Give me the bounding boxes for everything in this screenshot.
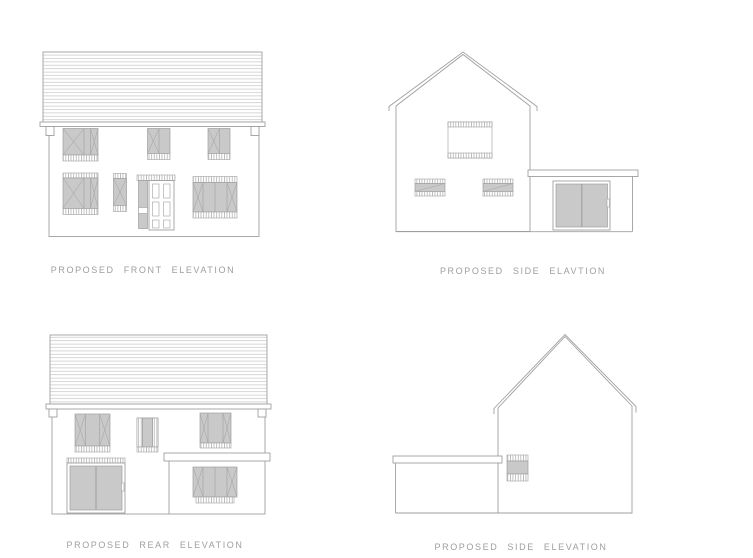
- front-door-sidelight: [139, 181, 148, 229]
- front-window-lower-left: [63, 173, 98, 215]
- rear-extension-roof: [164, 453, 270, 461]
- front-roof: [43, 52, 262, 122]
- side-top-gable-vent: [448, 122, 492, 158]
- front-window-lower-right: [193, 177, 237, 219]
- front-corbel-left: [46, 127, 54, 136]
- front-elevation: PROPOSED FRONT ELEVATION: [40, 52, 265, 275]
- side-bottom-gable-wall: [498, 337, 632, 514]
- rear-window-upper-right: [200, 413, 231, 448]
- side-bottom-window: [507, 455, 528, 481]
- rear-window-upper-middle: [137, 418, 158, 452]
- rear-roof: [50, 335, 267, 404]
- rear-corbel-left: [49, 409, 57, 417]
- rear-extension-window: [193, 467, 237, 503]
- drawing-sheet: PROPOSED FRONT ELEVATION: [0, 0, 753, 558]
- rear-fascia: [46, 404, 271, 409]
- side-top-elevation-caption: PROPOSED SIDE ELAVTION: [440, 266, 606, 276]
- rear-elevation: PROPOSED REAR ELEVATION: [46, 335, 271, 550]
- rear-patio-door: [67, 458, 125, 513]
- side-elevation-bottom: PROPOSED SIDE ELEVATION: [393, 335, 636, 553]
- front-window-small: [114, 174, 127, 212]
- side-bottom-extension-roof: [393, 456, 502, 463]
- side-top-window-left: [415, 179, 445, 196]
- rear-elevation-caption: PROPOSED REAR ELEVATION: [67, 540, 244, 550]
- side-elevation-top: PROPOSED SIDE ELAVTION: [389, 52, 638, 276]
- front-fascia: [40, 122, 265, 127]
- front-corbel-right: [251, 127, 259, 136]
- rear-window-upper-left: [75, 414, 110, 452]
- side-bottom-elevation-caption: PROPOSED SIDE ELEVATION: [435, 542, 608, 552]
- side-top-extension-roof: [528, 170, 638, 177]
- front-door: [137, 175, 175, 230]
- side-top-sliding-door: [553, 181, 610, 230]
- front-window-upper-right: [208, 129, 230, 160]
- side-top-window-right: [483, 179, 513, 196]
- front-elevation-caption: PROPOSED FRONT ELEVATION: [51, 265, 235, 275]
- rear-corbel-right: [258, 409, 266, 417]
- front-window-upper-left: [63, 129, 98, 162]
- front-window-upper-middle: [148, 129, 171, 160]
- elevations-drawing: PROPOSED FRONT ELEVATION: [0, 0, 753, 558]
